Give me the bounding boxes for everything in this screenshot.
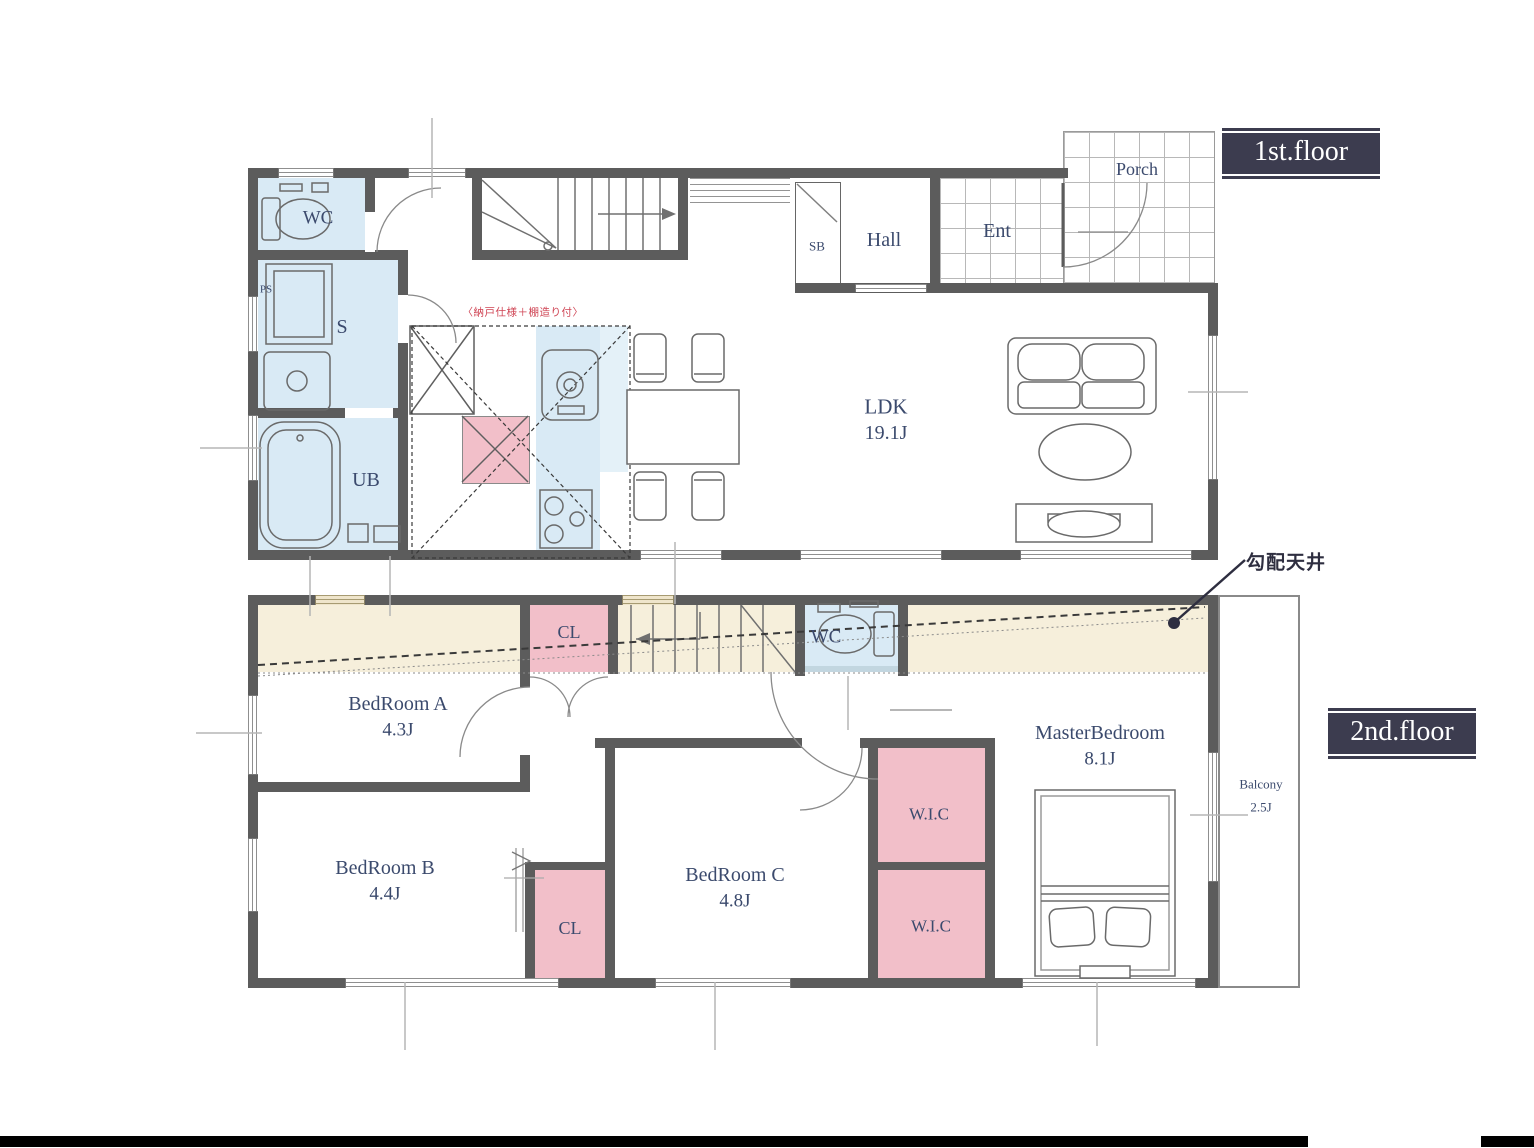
wc2-floor-strip bbox=[805, 666, 898, 672]
f1-ub-door-gap bbox=[345, 408, 393, 418]
bedroom-b-size: 4.4J bbox=[369, 885, 400, 904]
wic-lower-label: W.I.C bbox=[911, 918, 951, 935]
f1-s-door-gap bbox=[398, 295, 408, 343]
bedroom-c-label: BedRoom C bbox=[685, 865, 784, 885]
f2-wall-c-left bbox=[605, 748, 615, 988]
bedroom-a-size: 4.3J bbox=[382, 721, 413, 740]
f1-window-bottom1 bbox=[640, 550, 722, 560]
f2-window-top1 bbox=[315, 595, 365, 605]
kitchen-counter-top bbox=[600, 326, 628, 472]
shoebox-label: SB bbox=[809, 240, 825, 253]
porch-label: Porch bbox=[1116, 160, 1158, 178]
f2-window-b-left bbox=[248, 838, 258, 912]
pantry-pink-box bbox=[462, 416, 530, 484]
f1-window-bottom3 bbox=[1020, 550, 1192, 560]
tv-board-icon bbox=[1016, 504, 1152, 542]
first-floor-badge-text: 1st.floor bbox=[1222, 131, 1380, 176]
coffee-table-icon bbox=[1039, 424, 1131, 480]
f2-window-bottom1 bbox=[345, 978, 559, 988]
f1-window-s-left bbox=[248, 296, 258, 352]
f2-window-bottom2 bbox=[655, 978, 791, 988]
wic-upper-label: W.I.C bbox=[909, 806, 949, 823]
entrance-label: Ent bbox=[983, 221, 1011, 241]
f1-wall-right-lower bbox=[1208, 478, 1218, 560]
balcony-label: Balcony bbox=[1239, 778, 1282, 791]
f1-window-ub-left bbox=[248, 415, 258, 481]
f1-wall-stair-left bbox=[472, 168, 482, 260]
bed-icon bbox=[1035, 790, 1175, 978]
hall-label: Hall bbox=[867, 230, 901, 250]
sanitary-label: S bbox=[336, 317, 347, 337]
f2-wall-c-top-right bbox=[860, 738, 995, 748]
kitchen-counter bbox=[536, 326, 600, 560]
f2-wall-ab-divider bbox=[248, 782, 530, 792]
f2-wall-cl2-left bbox=[525, 862, 535, 978]
stairs-f1-arrow bbox=[662, 208, 676, 220]
ps-label: PS bbox=[260, 285, 272, 296]
f2-wall-wc-left bbox=[795, 595, 805, 676]
f2-wall-wic-divider bbox=[868, 862, 995, 870]
f2-wall-cl2-top bbox=[525, 862, 615, 870]
f1-hall-door bbox=[855, 284, 927, 292]
sloped-ceiling-note: 勾配天井 bbox=[1246, 548, 1326, 575]
bottom-bar-right bbox=[1481, 1136, 1534, 1147]
master-bedroom-size: 8.1J bbox=[1084, 750, 1115, 769]
second-floor-badge: 2nd.floor bbox=[1328, 708, 1476, 759]
f1-wall-left bbox=[248, 168, 258, 560]
ldk-size-label: 19.1J bbox=[865, 423, 908, 443]
bedroom-a-label: BedRoom A bbox=[348, 694, 447, 714]
f1-wall-stair-right bbox=[678, 168, 688, 260]
ldk-label: LDK bbox=[864, 397, 907, 418]
f1-wall-stair-bottom bbox=[472, 250, 688, 260]
f2-wall-c-top-left bbox=[595, 738, 802, 748]
kitchen-red-note: 〈納戸仕様＋棚造り付〉 bbox=[463, 305, 584, 320]
f1-wall-wc-bottom bbox=[248, 250, 408, 260]
bath-label: UB bbox=[352, 470, 380, 490]
f1-window-top2 bbox=[408, 168, 466, 178]
f2-wall-wc-right bbox=[898, 595, 908, 676]
bedroom-b-label: BedRoom B bbox=[335, 858, 434, 878]
master-bedroom-label: MasterBedroom bbox=[1035, 723, 1165, 743]
f2-wall-cl1-left bbox=[520, 595, 530, 687]
f2-window-balcony-door bbox=[1208, 752, 1218, 882]
sanitary-room bbox=[256, 258, 400, 410]
f1-wall-hall-ent-divider bbox=[930, 168, 940, 293]
f1-window-ldk-right bbox=[1208, 335, 1218, 480]
first-floor-badge: 1st.floor bbox=[1222, 128, 1380, 179]
f2-wall-cl1-right bbox=[608, 595, 618, 674]
bottom-bar-left bbox=[0, 1136, 1308, 1147]
porch-tiles bbox=[1063, 131, 1215, 285]
balcony-size: 2.5J bbox=[1250, 801, 1271, 814]
second-floor-badge-text: 2nd.floor bbox=[1328, 711, 1476, 756]
f1-wc-door-gap bbox=[365, 212, 375, 252]
f2-window-a-left bbox=[248, 695, 258, 775]
f2-wall-a-right-lower bbox=[520, 755, 530, 792]
cl-lower-label: CL bbox=[558, 919, 581, 937]
wc2-label: WC bbox=[811, 628, 842, 647]
wc1-label: WC bbox=[303, 209, 334, 228]
f1-window-wc-top bbox=[278, 168, 334, 178]
balcony-area bbox=[1218, 595, 1300, 988]
hall-shelf bbox=[690, 178, 790, 206]
cl-upper-label: CL bbox=[557, 623, 580, 641]
stairs-f1 bbox=[482, 178, 662, 250]
f2-window-top2 bbox=[622, 595, 674, 605]
sb-shoebox bbox=[795, 182, 841, 286]
f1-window-bottom2 bbox=[800, 550, 942, 560]
f2-wall-top bbox=[248, 595, 1218, 605]
sloped-ceiling-band bbox=[258, 605, 1208, 672]
sofa-icon bbox=[1008, 338, 1156, 414]
floorplan-canvas: WC PS S UB SB Hall Ent Porch LDK 19.1J 〈… bbox=[0, 0, 1534, 1148]
bedroom-c-size: 4.8J bbox=[719, 892, 750, 911]
f2-window-bottom3 bbox=[1022, 978, 1196, 988]
dining-set bbox=[627, 334, 739, 520]
